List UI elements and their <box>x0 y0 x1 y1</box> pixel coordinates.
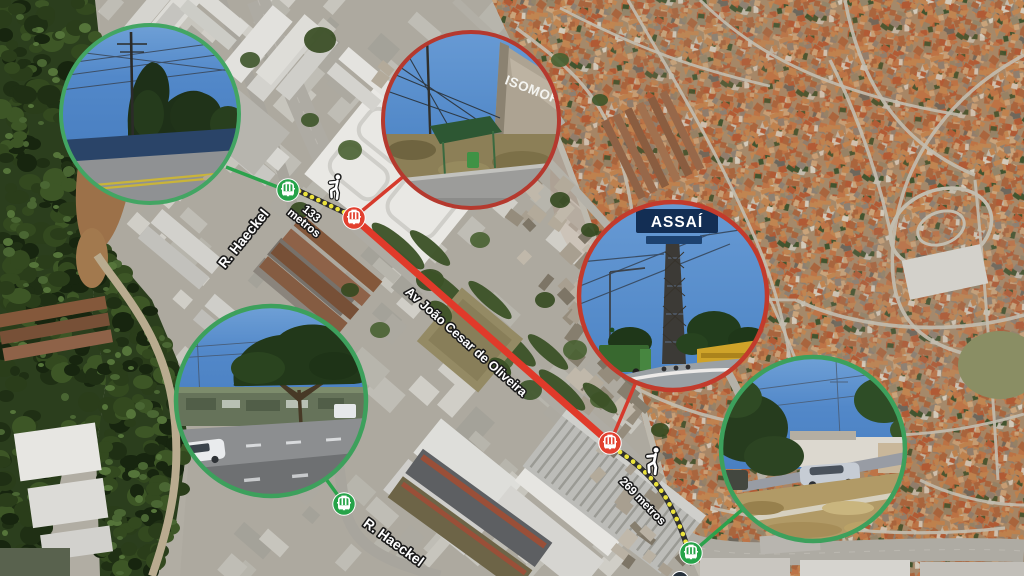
svg-text:ASSAÍ: ASSAÍ <box>651 214 703 231</box>
